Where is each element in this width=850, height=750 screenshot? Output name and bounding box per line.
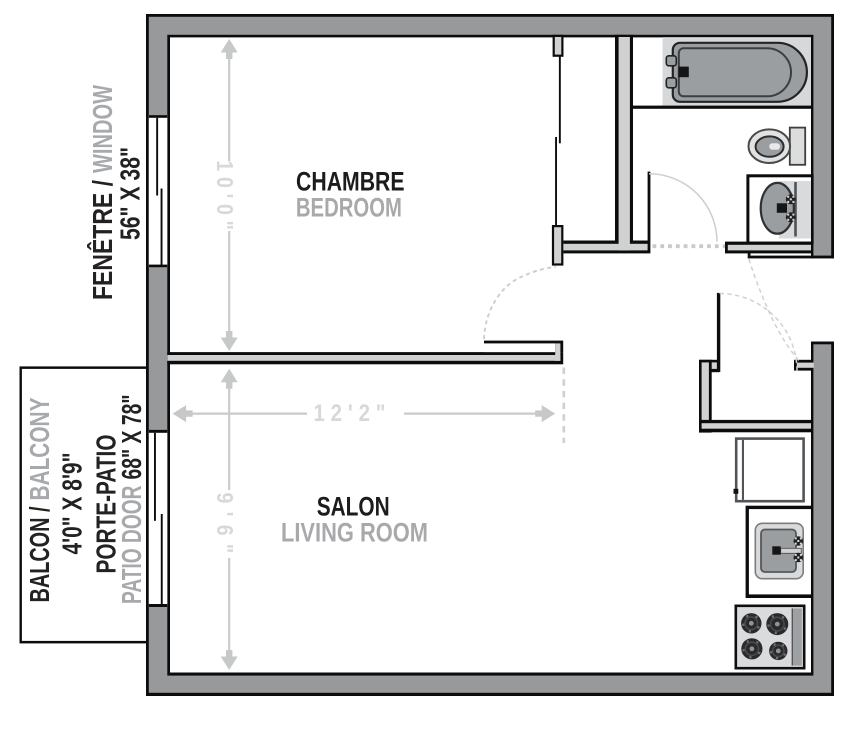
svg-text:WINDOW: WINDOW xyxy=(87,85,118,173)
svg-text:12'2": 12'2" xyxy=(313,400,391,427)
svg-text:PATIO DOOR: PATIO DOOR xyxy=(116,486,147,605)
svg-text:10'0": 10'0" xyxy=(212,160,238,235)
svg-text:BALCONY: BALCONY xyxy=(24,397,55,500)
svg-text:68" X 78": 68" X 78" xyxy=(116,395,147,480)
svg-text:BALCON /: BALCON / xyxy=(24,506,55,602)
svg-text:9'6": 9'6" xyxy=(212,493,238,562)
svg-text:56" X 38": 56" X 38" xyxy=(115,147,146,240)
svg-text:4'0" X 8'9": 4'0" X 8'9" xyxy=(57,453,88,555)
svg-text:BEDROOM: BEDROOM xyxy=(296,193,402,223)
svg-text:FENÊTRE /: FENÊTRE / xyxy=(87,180,118,300)
svg-text:LIVING ROOM: LIVING ROOM xyxy=(281,518,428,548)
